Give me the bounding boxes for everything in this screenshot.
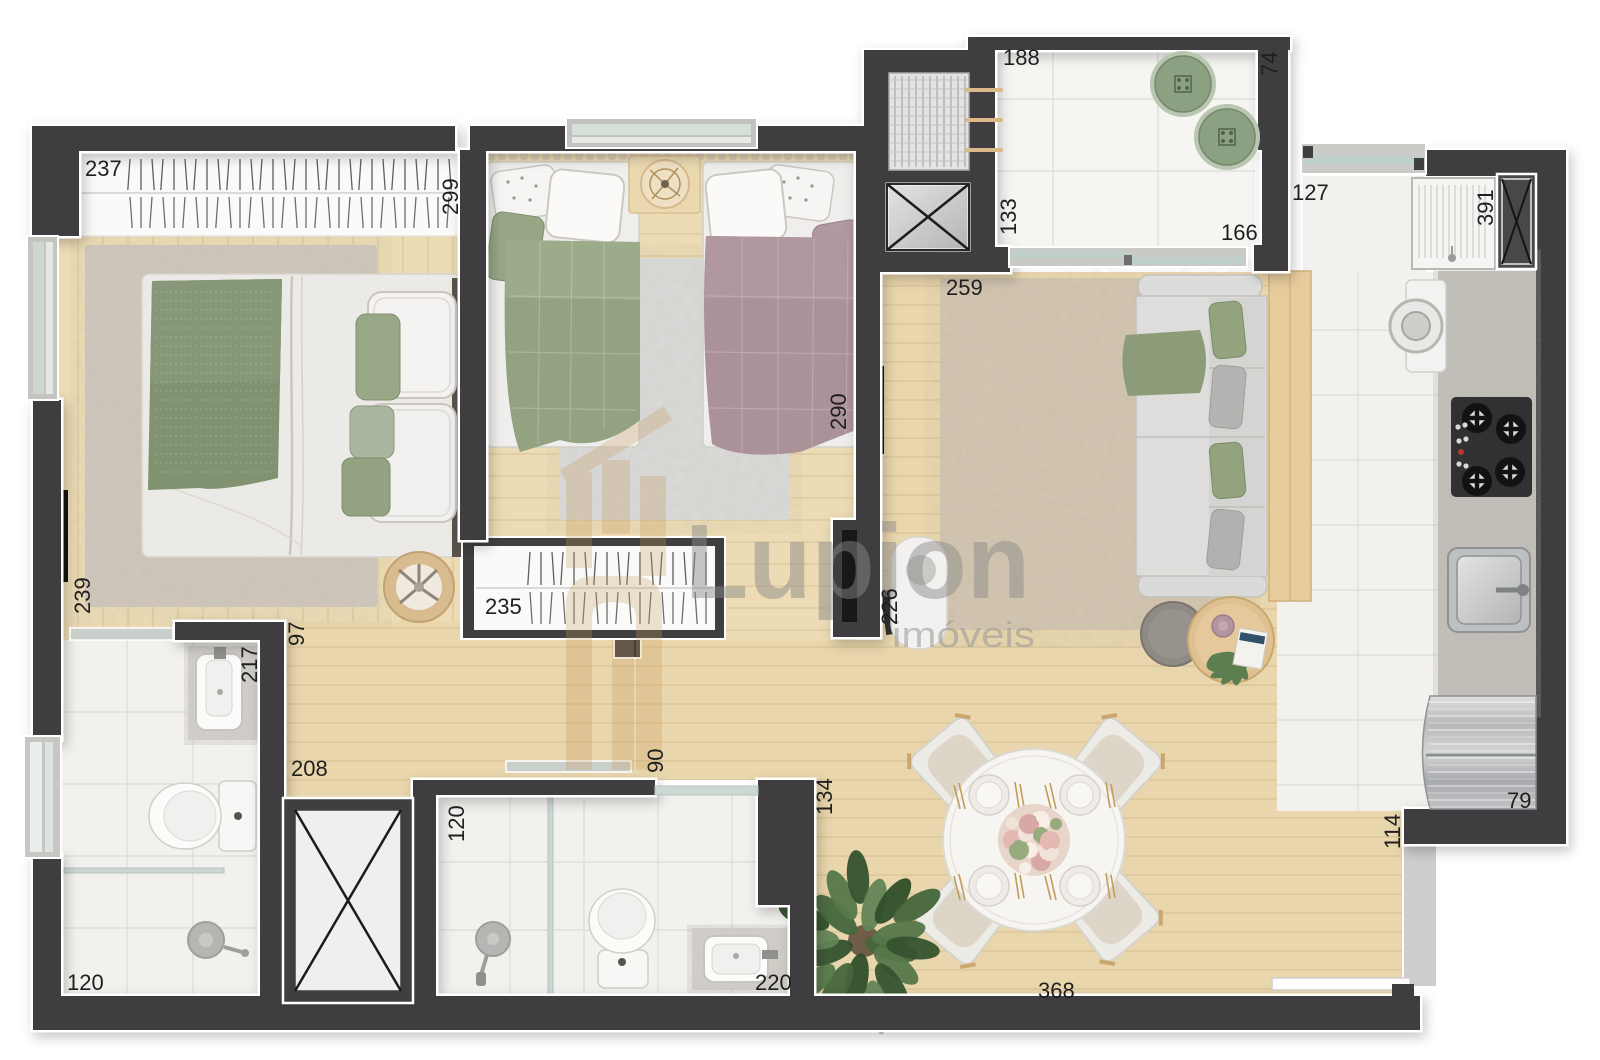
svg-text:114: 114 (1380, 814, 1405, 849)
svg-text:368: 368 (1038, 978, 1075, 1003)
svg-text:217: 217 (237, 646, 262, 683)
svg-text:235: 235 (485, 594, 522, 619)
svg-text:220: 220 (755, 970, 792, 995)
svg-text:133: 133 (996, 198, 1021, 235)
svg-text:237: 237 (85, 156, 122, 181)
svg-text:127: 127 (1292, 180, 1329, 205)
svg-text:299: 299 (438, 178, 463, 215)
svg-text:79: 79 (1507, 788, 1531, 813)
svg-text:74: 74 (1257, 52, 1282, 76)
svg-text:226: 226 (877, 588, 902, 625)
svg-text:166: 166 (1221, 220, 1258, 245)
svg-text:259: 259 (946, 275, 983, 300)
svg-text:391: 391 (1473, 189, 1498, 226)
svg-text:97: 97 (284, 622, 309, 646)
svg-text:239: 239 (70, 577, 95, 614)
svg-text:290: 290 (826, 393, 851, 430)
svg-text:208: 208 (291, 756, 328, 781)
svg-text:90: 90 (643, 749, 668, 773)
svg-text:120: 120 (67, 970, 104, 995)
svg-text:134: 134 (812, 778, 837, 815)
svg-text:imóveis: imóveis (892, 614, 1035, 655)
svg-text:188: 188 (1003, 45, 1040, 70)
svg-text:120: 120 (444, 805, 469, 842)
svg-text:Lupion: Lupion (685, 503, 1030, 621)
